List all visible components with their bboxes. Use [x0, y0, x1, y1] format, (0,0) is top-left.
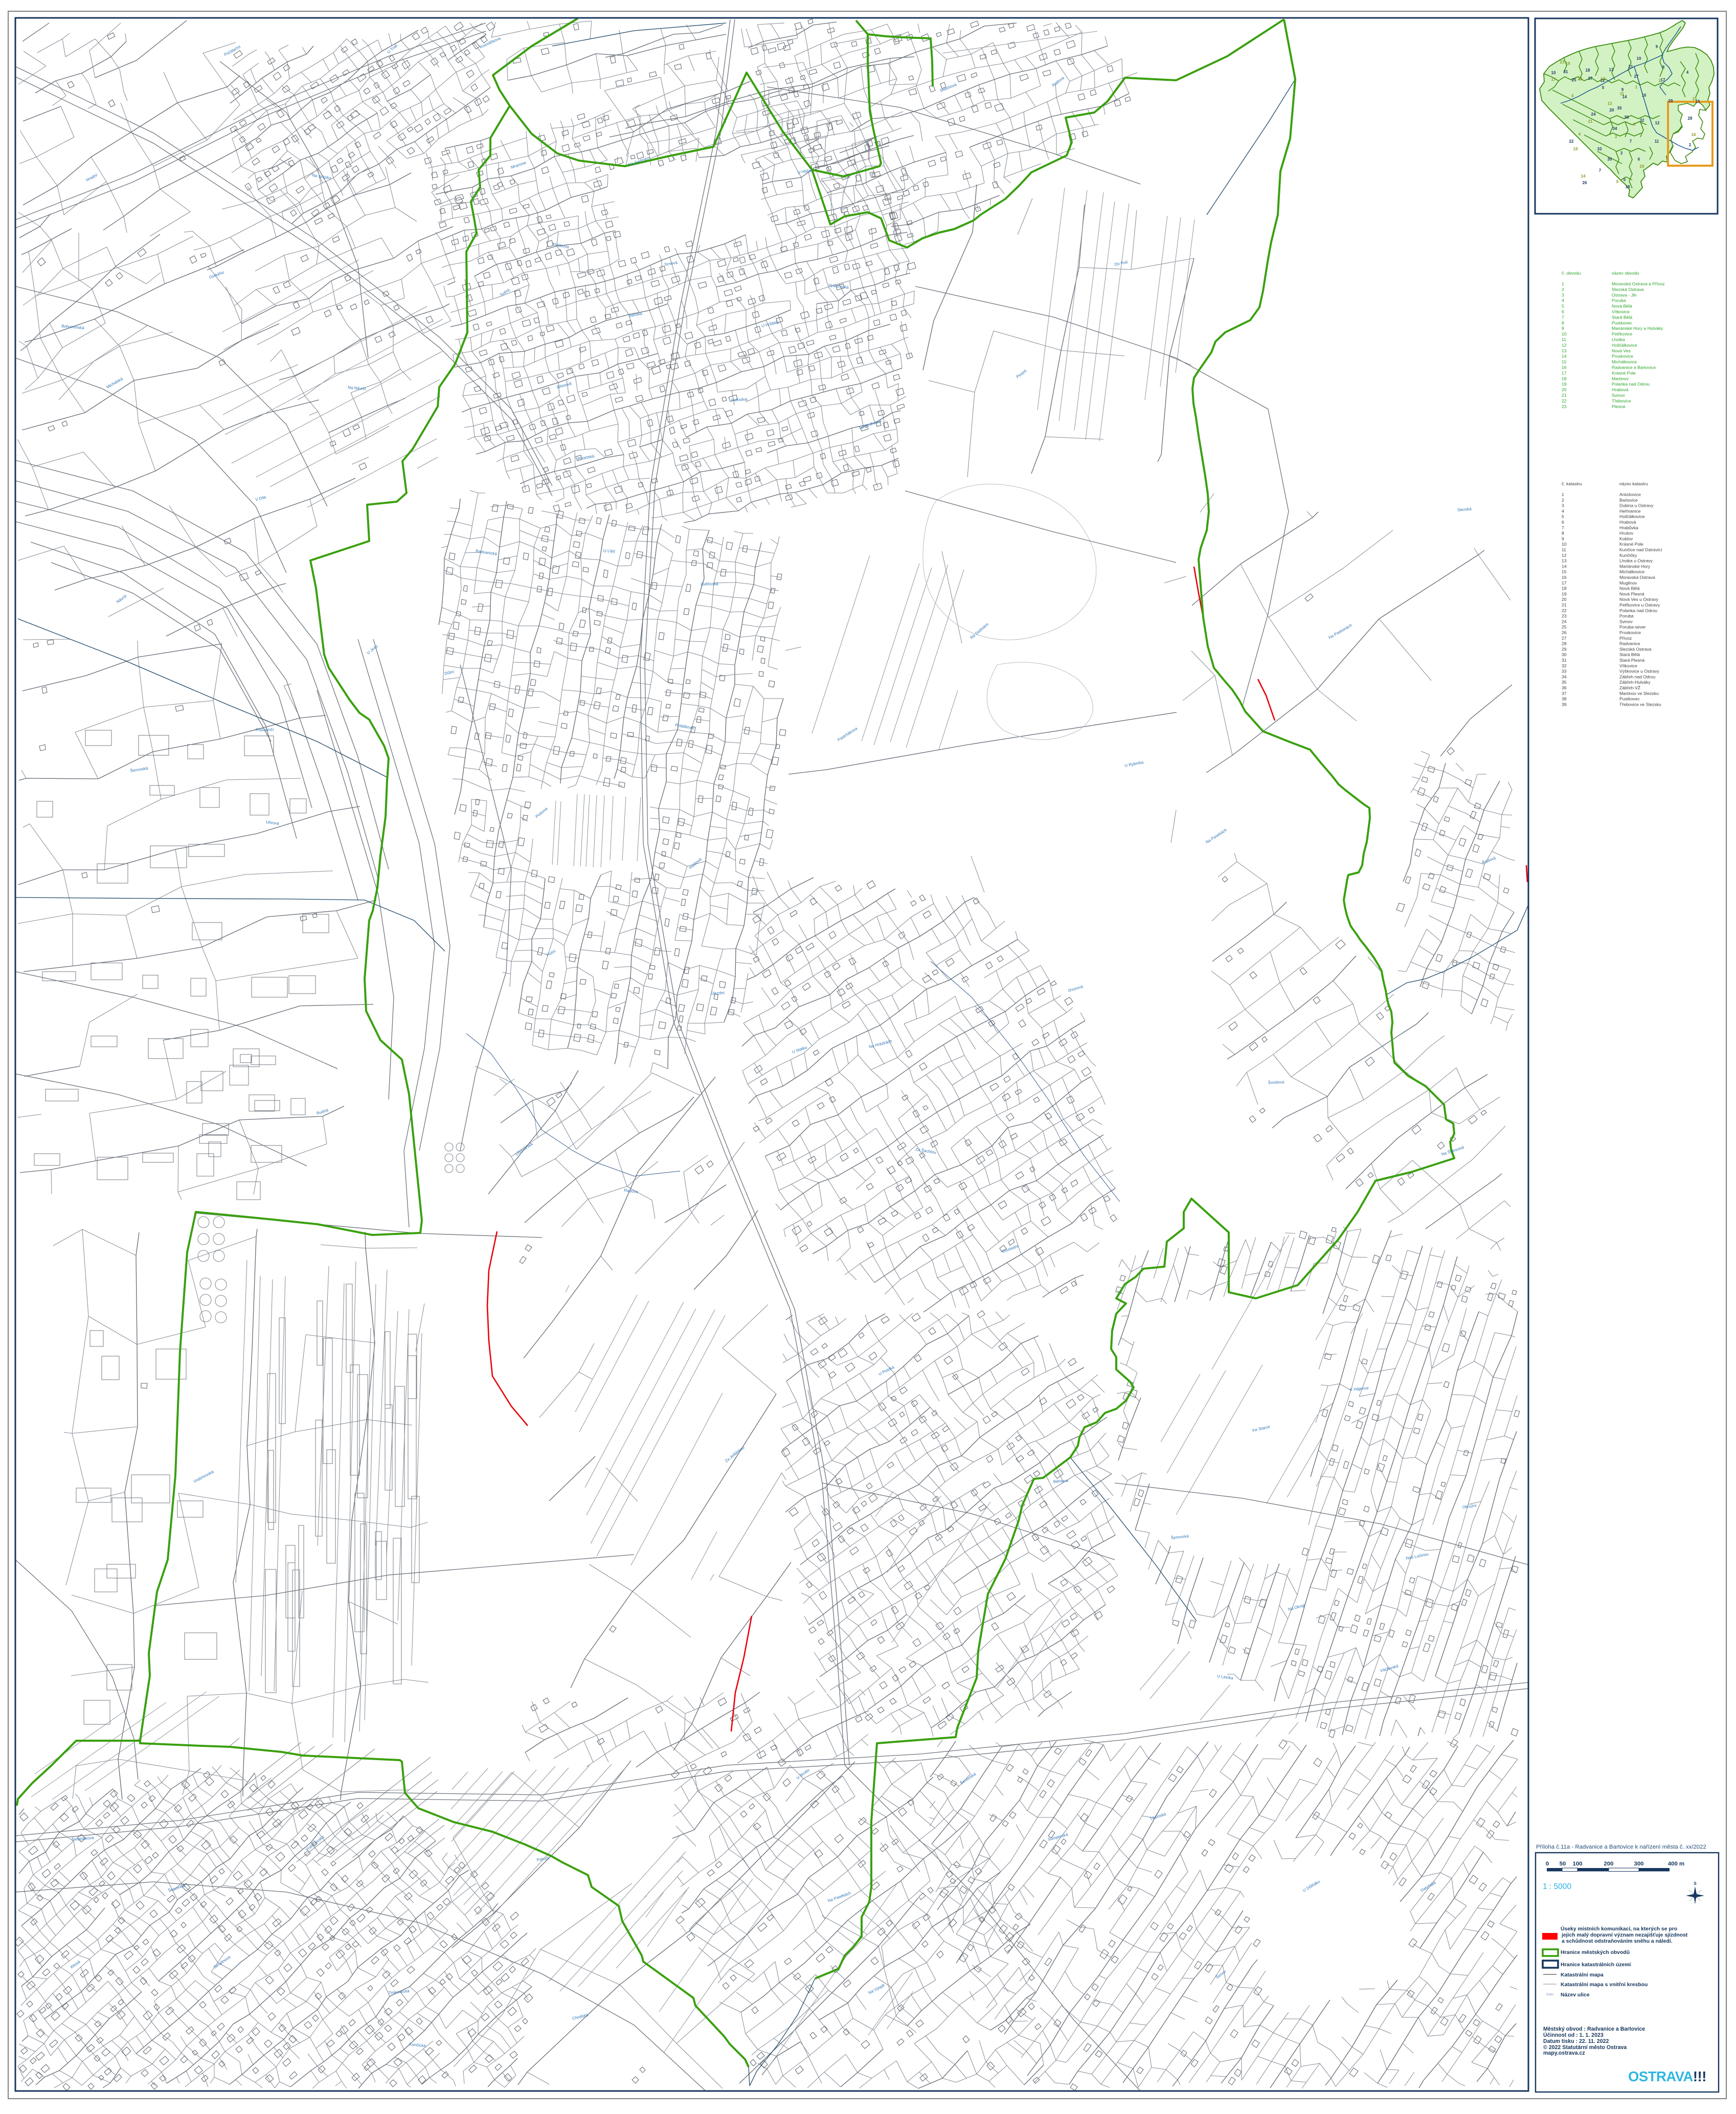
svg-text:21: 21 — [1562, 602, 1567, 608]
svg-text:0: 0 — [1546, 1861, 1549, 1867]
svg-text:jejich malý dopravní význam ne: jejich malý dopravní význam nezajišťuje … — [1561, 1932, 1688, 1938]
svg-text:Moravská Ostrava a Přívoz: Moravská Ostrava a Přívoz — [1612, 281, 1665, 286]
svg-text:11: 11 — [1655, 139, 1659, 144]
svg-text:Újezdní: Újezdní — [711, 991, 725, 996]
svg-text:12: 12 — [1562, 343, 1567, 348]
svg-text:Poruba-sever: Poruba-sever — [1619, 624, 1646, 629]
svg-text:č. katastru: č. katastru — [1562, 481, 1582, 486]
svg-text:23: 23 — [1562, 614, 1567, 619]
svg-text:36: 36 — [1625, 115, 1629, 120]
svg-text:19: 19 — [1573, 147, 1578, 151]
svg-text:Petřkovice: Petřkovice — [1612, 331, 1632, 336]
svg-text:16: 16 — [1642, 93, 1647, 98]
svg-text:14: 14 — [1562, 564, 1567, 569]
svg-text:Zábřeh-Hulváky: Zábřeh-Hulváky — [1619, 680, 1651, 685]
svg-text:Antošovice: Antošovice — [1619, 492, 1641, 497]
svg-text:22: 22 — [1578, 77, 1583, 81]
svg-text:10: 10 — [1551, 71, 1556, 75]
svg-text:název katastru: název katastru — [1619, 481, 1648, 486]
svg-text:29: 29 — [1562, 646, 1567, 651]
svg-text:20: 20 — [1562, 597, 1567, 602]
svg-text:Martinov: Martinov — [1612, 376, 1629, 381]
svg-text:9: 9 — [1562, 536, 1564, 541]
svg-text:20: 20 — [1640, 164, 1644, 169]
svg-text:Katastrální mapa s vnitřní kre: Katastrální mapa s vnitřní kresbou — [1561, 1982, 1648, 1988]
svg-text:5: 5 — [1562, 304, 1564, 309]
svg-text:Pustkovec: Pustkovec — [1619, 696, 1640, 702]
svg-text:35: 35 — [1562, 680, 1567, 685]
svg-text:7: 7 — [1599, 168, 1602, 173]
svg-text:2: 2 — [1689, 143, 1692, 147]
svg-text:Nová Bělá: Nová Bělá — [1612, 304, 1632, 309]
svg-text:Šmídova: Šmídova — [1268, 1080, 1285, 1085]
svg-text:27: 27 — [1562, 636, 1567, 641]
svg-text:Hranice katastrálních území: Hranice katastrálních území — [1561, 1962, 1632, 1968]
svg-text:19: 19 — [1562, 591, 1567, 596]
svg-text:18: 18 — [1626, 185, 1630, 189]
svg-text:10: 10 — [1562, 331, 1567, 336]
svg-text:Hošťálkovice: Hošťálkovice — [1619, 514, 1645, 519]
svg-text:Stará Plesná: Stará Plesná — [1619, 658, 1644, 663]
svg-text:Koblov: Koblov — [1619, 536, 1633, 541]
svg-text:35: 35 — [1617, 106, 1622, 110]
svg-text:Martinov ve Slezsku: Martinov ve Slezsku — [1619, 691, 1659, 696]
svg-text:20: 20 — [1610, 108, 1614, 113]
svg-text:23: 23 — [1562, 404, 1567, 409]
svg-text:Dubina u Ostravy: Dubina u Ostravy — [1619, 503, 1654, 508]
svg-text:Radvanice a Bartovice: Radvanice a Bartovice — [1612, 365, 1656, 370]
svg-text:1: 1 — [1562, 492, 1564, 497]
svg-text:Hrabová: Hrabová — [1619, 520, 1636, 525]
svg-text:4: 4 — [1562, 508, 1564, 513]
svg-text:17: 17 — [1551, 77, 1556, 82]
svg-text:25: 25 — [1562, 624, 1567, 629]
svg-text:Moravská Ostrava: Moravská Ostrava — [1619, 575, 1655, 580]
svg-text:Ostrava - Jih: Ostrava - Jih — [1612, 293, 1637, 298]
svg-text:15: 15 — [1562, 569, 1567, 574]
svg-text:28: 28 — [1688, 116, 1693, 121]
svg-text:Výškovice u Ostravy: Výškovice u Ostravy — [1619, 669, 1660, 674]
svg-text:12: 12 — [1655, 121, 1660, 125]
svg-text:22: 22 — [1562, 398, 1567, 403]
svg-text:27: 27 — [1634, 74, 1639, 79]
svg-text:14: 14 — [1581, 174, 1586, 178]
svg-text:Datum tisku : 22. 11. 2022: Datum tisku : 22. 11. 2022 — [1543, 2038, 1609, 2044]
svg-text:Krásné Pole: Krásné Pole — [1619, 542, 1643, 547]
svg-text:31: 31 — [1564, 70, 1568, 74]
svg-text:Svinov: Svinov — [1612, 393, 1625, 398]
svg-text:Petřkovice u Ostravy: Petřkovice u Ostravy — [1619, 602, 1660, 608]
svg-text:1 : 5000: 1 : 5000 — [1543, 1882, 1571, 1891]
svg-text:13: 13 — [1562, 348, 1567, 353]
svg-text:8: 8 — [1562, 531, 1564, 536]
svg-text:18: 18 — [1586, 68, 1590, 73]
svg-text:13: 13 — [1562, 558, 1567, 564]
svg-text:14: 14 — [1562, 354, 1567, 359]
svg-text:200: 200 — [1604, 1861, 1613, 1867]
svg-text:18: 18 — [1562, 376, 1567, 381]
svg-text:Hvězdná: Hvězdná — [731, 397, 748, 402]
svg-text:32: 32 — [1640, 118, 1644, 123]
svg-text:24: 24 — [1562, 619, 1567, 624]
svg-text:1: 1 — [1562, 281, 1564, 286]
svg-text:Městský obvod : Radvanice a Ba: Městský obvod : Radvanice a Bartovice — [1543, 2026, 1645, 2032]
svg-text:2: 2 — [1659, 78, 1661, 83]
svg-text:Třebovice ve Slezsku: Třebovice ve Slezsku — [1619, 702, 1661, 707]
svg-text:Krásné Pole: Krásné Pole — [1612, 370, 1636, 375]
svg-text:Podzámčí: Podzámčí — [256, 727, 274, 732]
svg-text:Hrabůvka: Hrabůvka — [1619, 525, 1638, 530]
svg-text:5: 5 — [1616, 179, 1619, 184]
svg-text:4: 4 — [1686, 70, 1689, 75]
svg-text:Radvanice: Radvanice — [1619, 641, 1640, 646]
svg-text:28: 28 — [1562, 641, 1567, 646]
svg-text:U Lípy: U Lípy — [603, 549, 615, 553]
svg-text:30: 30 — [1608, 157, 1612, 162]
svg-text:17: 17 — [1562, 370, 1567, 375]
svg-text:10: 10 — [1637, 56, 1641, 61]
svg-text:11: 11 — [1562, 547, 1566, 552]
svg-text:Proskovice: Proskovice — [1612, 354, 1633, 359]
svg-text:Lhotka: Lhotka — [1612, 337, 1625, 342]
svg-text:50: 50 — [1560, 1861, 1566, 1867]
svg-text:OSTRAVA!!!: OSTRAVA!!! — [1628, 2068, 1706, 2084]
svg-text:13: 13 — [1608, 101, 1612, 106]
svg-text:Bartovice: Bartovice — [1619, 498, 1638, 503]
svg-text:26: 26 — [1583, 181, 1587, 185]
svg-text:Hrušov: Hrušov — [1619, 531, 1634, 536]
svg-text:Muglinov: Muglinov — [1619, 580, 1637, 586]
svg-text:6: 6 — [1638, 157, 1640, 162]
svg-text:Pustkovec: Pustkovec — [1612, 320, 1632, 325]
svg-text:Zábřeh nad Odrou: Zábřeh nad Odrou — [1619, 674, 1655, 679]
svg-text:Nová Ves: Nová Ves — [1612, 348, 1631, 353]
svg-text:Hranice městských obvodů: Hranice městských obvodů — [1561, 1949, 1630, 1955]
svg-text:Katastrální mapa: Katastrální mapa — [1561, 1972, 1604, 1978]
svg-text:Stará Bělá: Stará Bělá — [1619, 652, 1640, 657]
svg-text:21: 21 — [1562, 393, 1567, 398]
svg-text:název obvodu: název obvodu — [1612, 271, 1639, 276]
svg-text:7: 7 — [1562, 525, 1564, 530]
svg-text:30: 30 — [1562, 652, 1567, 657]
svg-text:11: 11 — [1562, 337, 1566, 342]
svg-text:8: 8 — [1662, 65, 1665, 70]
svg-text:33: 33 — [1597, 147, 1602, 151]
svg-text:22: 22 — [1562, 608, 1567, 613]
svg-text:20: 20 — [1562, 387, 1567, 392]
svg-text:Proskovice: Proskovice — [1619, 630, 1641, 635]
svg-text:Nová Bělá: Nová Bělá — [1619, 586, 1640, 591]
svg-text:23: 23 — [1560, 60, 1565, 64]
svg-text:9: 9 — [1562, 326, 1564, 331]
svg-text:Hošťálkovice: Hošťálkovice — [1612, 343, 1637, 348]
svg-text:16: 16 — [1562, 575, 1567, 580]
svg-text:Heřmanice: Heřmanice — [1619, 508, 1641, 513]
svg-text:34: 34 — [1613, 126, 1617, 131]
svg-text:6: 6 — [1562, 309, 1564, 314]
svg-text:Michálkovice: Michálkovice — [1612, 359, 1637, 365]
svg-text:a schůdnost odstraňováním sněh: a schůdnost odstraňováním sněhu a náledí… — [1562, 1938, 1673, 1944]
svg-text:17: 17 — [1661, 78, 1665, 82]
svg-text:37: 37 — [1562, 691, 1567, 696]
svg-text:5: 5 — [1602, 85, 1605, 90]
svg-text:Hrabová: Hrabová — [1612, 387, 1629, 392]
svg-text:Plesná: Plesná — [1612, 404, 1625, 409]
svg-text:8: 8 — [1562, 320, 1564, 325]
svg-text:31: 31 — [1562, 658, 1567, 663]
svg-text:3: 3 — [1562, 293, 1564, 298]
svg-text:37: 37 — [1588, 76, 1593, 81]
svg-text:Mariánské Hory a Hulváky: Mariánské Hory a Hulváky — [1612, 326, 1663, 331]
svg-text:25: 25 — [1572, 78, 1576, 82]
svg-text:Slezská Ostrava: Slezská Ostrava — [1612, 287, 1644, 292]
svg-text:5: 5 — [1624, 177, 1626, 182]
svg-text:Slezská Ostrava: Slezská Ostrava — [1619, 646, 1652, 651]
svg-text:26: 26 — [1562, 630, 1567, 635]
svg-text:Vítkovice: Vítkovice — [1612, 309, 1630, 314]
svg-text:Nová Plesná: Nová Plesná — [1619, 591, 1644, 596]
svg-text:16: 16 — [1692, 132, 1696, 137]
svg-text:19: 19 — [1562, 381, 1567, 387]
svg-text:34: 34 — [1562, 674, 1567, 679]
svg-text:3: 3 — [1562, 503, 1564, 508]
svg-text:Poruba: Poruba — [1612, 298, 1626, 303]
svg-text:Mariánské Hory: Mariánské Hory — [1619, 564, 1651, 569]
svg-text:17: 17 — [1562, 580, 1567, 586]
svg-text:16: 16 — [1562, 365, 1567, 370]
svg-text:100: 100 — [1572, 1861, 1582, 1867]
svg-text:Vítkovice: Vítkovice — [1619, 663, 1637, 668]
svg-text:S: S — [1694, 1881, 1697, 1886]
svg-text:Zábřeh-VŽ: Zábřeh-VŽ — [1619, 685, 1640, 690]
svg-text:3: 3 — [1620, 151, 1623, 155]
svg-text:2: 2 — [1562, 287, 1564, 292]
svg-text:Kunčice nad Ostravicí: Kunčice nad Ostravicí — [1619, 547, 1662, 552]
svg-text:Zvěřinská: Zvěřinská — [701, 581, 718, 587]
svg-text:Poruba: Poruba — [1619, 614, 1634, 619]
svg-text:4: 4 — [1571, 94, 1574, 98]
svg-text:3: 3 — [1615, 134, 1617, 139]
svg-text:6: 6 — [1633, 122, 1636, 127]
svg-text:4: 4 — [1562, 298, 1564, 303]
svg-text:13: 13 — [1609, 68, 1614, 72]
svg-text:15: 15 — [1693, 97, 1697, 101]
svg-text:12: 12 — [1562, 553, 1567, 558]
svg-text:21: 21 — [1588, 119, 1593, 124]
svg-text:29: 29 — [1669, 99, 1673, 103]
svg-text:6: 6 — [1562, 520, 1564, 525]
svg-text:33: 33 — [1562, 669, 1567, 674]
svg-text:39: 39 — [1562, 702, 1567, 707]
svg-text:9: 9 — [1656, 44, 1658, 49]
svg-text:24: 24 — [1591, 112, 1596, 117]
svg-text:15: 15 — [1562, 359, 1567, 365]
svg-text:19: 19 — [1566, 61, 1570, 66]
svg-text:č. obvodu: č. obvodu — [1562, 271, 1581, 276]
svg-text:Příloha č.11a - Radvanice a Ba: Příloha č.11a - Radvanice a Bartovice k … — [1536, 1844, 1706, 1850]
svg-text:Kunčičky: Kunčičky — [1619, 553, 1637, 558]
svg-text:Svinov: Svinov — [1619, 619, 1633, 624]
svg-text:Přívoz: Přívoz — [1619, 636, 1632, 641]
svg-text:18: 18 — [1562, 586, 1567, 591]
svg-text:12: 12 — [1601, 77, 1606, 81]
svg-text:Lhotka u Ostravy: Lhotka u Ostravy — [1619, 558, 1653, 564]
svg-text:Úseky místních komunikací, na: Úseky místních komunikací, na kterých se… — [1561, 1925, 1677, 1932]
svg-text:Dolní: Dolní — [1546, 1993, 1553, 1996]
svg-text:1: 1 — [1635, 85, 1638, 89]
svg-text:mapy.ostrava.cz: mapy.ostrava.cz — [1543, 2050, 1585, 2056]
svg-text:4: 4 — [1579, 132, 1581, 137]
svg-text:400 m: 400 m — [1668, 1861, 1684, 1867]
svg-text:Třebovice: Třebovice — [1612, 398, 1631, 403]
svg-text:Polanka nad Odrou: Polanka nad Odrou — [1619, 608, 1657, 613]
svg-text:38: 38 — [1562, 696, 1567, 702]
svg-text:7: 7 — [1630, 139, 1632, 144]
svg-text:Polanka nad Odrou: Polanka nad Odrou — [1612, 381, 1650, 387]
svg-text:10: 10 — [1562, 542, 1567, 547]
svg-text:32: 32 — [1562, 663, 1567, 668]
svg-text:5: 5 — [1562, 514, 1564, 519]
svg-text:21: 21 — [1629, 64, 1633, 69]
svg-text:2: 2 — [1562, 498, 1564, 503]
svg-text:22: 22 — [1569, 139, 1574, 144]
svg-text:36: 36 — [1562, 685, 1567, 690]
svg-text:7: 7 — [1562, 314, 1564, 320]
svg-text:Michálkovice: Michálkovice — [1619, 569, 1644, 574]
svg-text:Nová Ves u Ostravy: Nová Ves u Ostravy — [1619, 597, 1659, 602]
svg-text:Účinnost od : 1. 1. 2023: Účinnost od : 1. 1. 2023 — [1543, 2032, 1604, 2038]
svg-text:Stará Bělá: Stará Bělá — [1612, 314, 1632, 320]
svg-text:300: 300 — [1634, 1861, 1643, 1867]
svg-text:Název ulice: Název ulice — [1561, 1992, 1590, 1998]
svg-text:11: 11 — [1620, 92, 1625, 96]
